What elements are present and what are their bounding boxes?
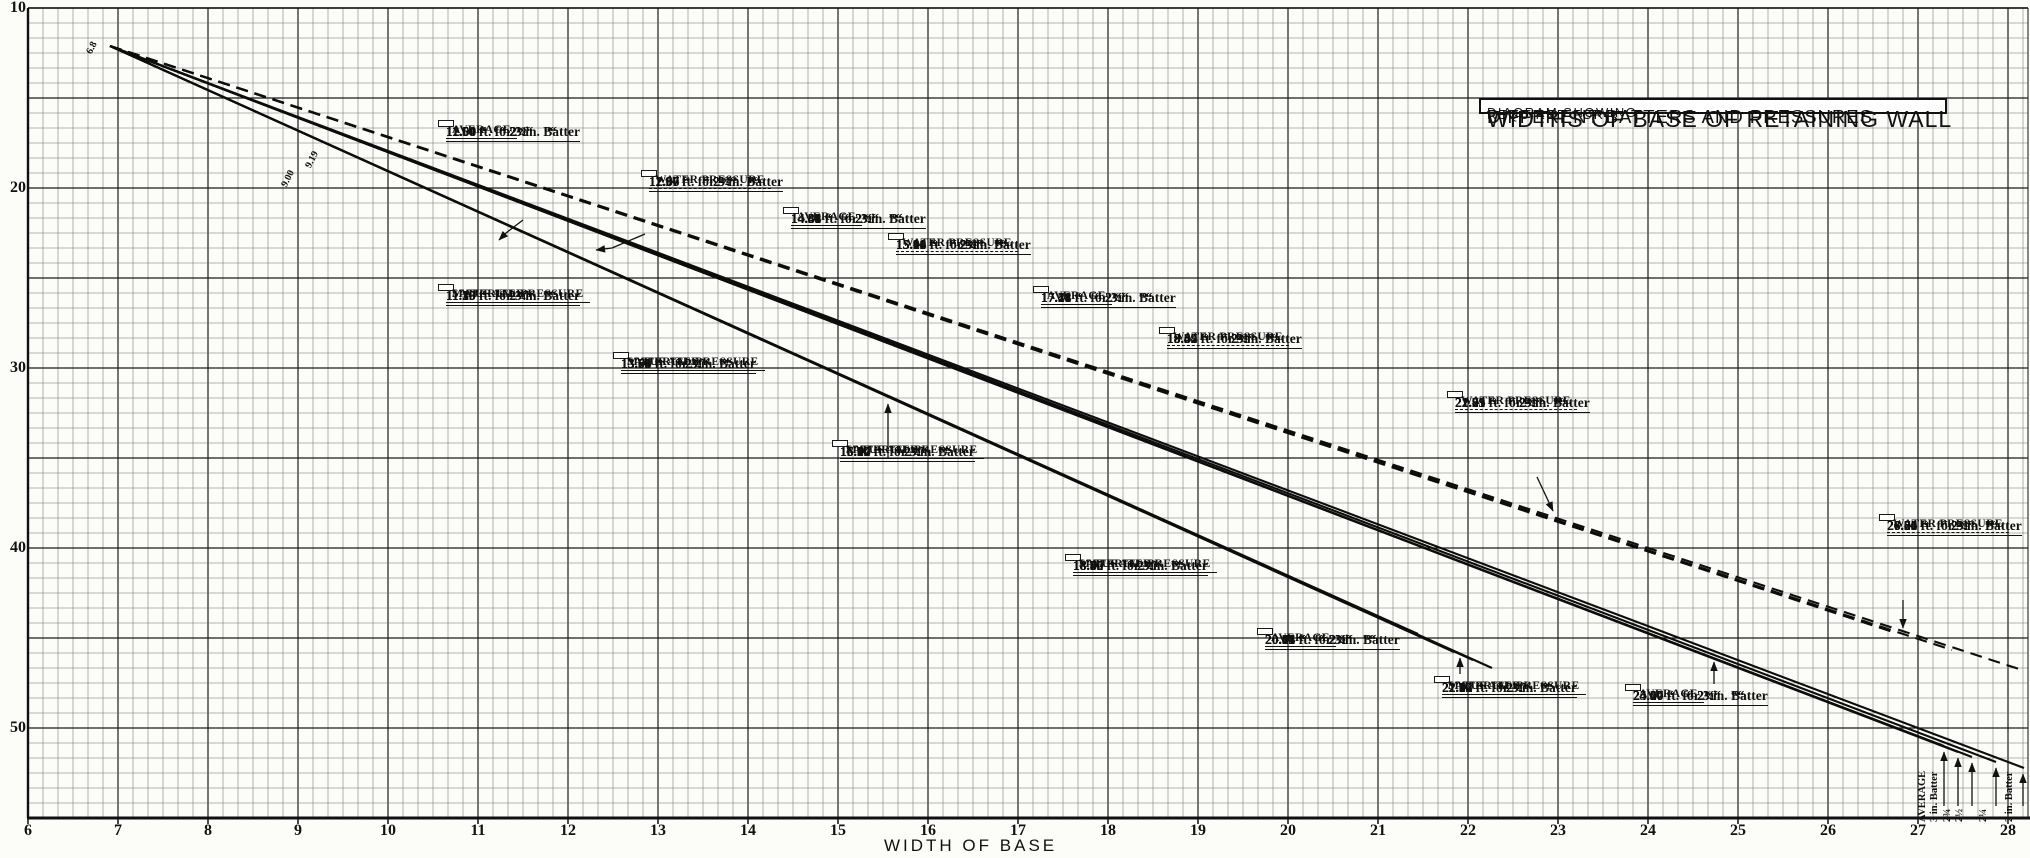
batter-width-row: 14.84 “ “ 2 “ “ <box>791 210 896 227</box>
x-tick-label: 24 <box>1626 822 1670 840</box>
annotation-box-average: AVERAGE14.31 ft. for 3 in. Batter14.35 “… <box>783 207 799 214</box>
y-tick-label: 20 <box>0 179 26 197</box>
curve-end-label: AVERAGE <box>1917 771 1929 822</box>
annotation-box-water-pressure: WATER PRESSURE11.97 ft. for 3 in. Batter… <box>641 170 657 177</box>
annotation-box-saturated: SATURATEDMATERIAL PRESSURE11.15 ft. for … <box>438 284 454 291</box>
curve-end-label: 2½ <box>1954 809 1966 822</box>
x-tick-label: 10 <box>366 822 410 840</box>
x-tick-label: 7 <box>96 822 140 840</box>
batter-width-row: 13.78 “ “ 2 “ “ <box>621 355 726 372</box>
batter-width-row: 22.79 “ “ 2 “ “ <box>1455 394 1560 411</box>
curve-average-2in <box>110 46 2024 768</box>
x-tick-label: 27 <box>1896 822 1940 840</box>
x-tick-label: 18 <box>1086 822 1130 840</box>
annotation-box-average: AVERAGE24.20 ft. for 3 in. Batter24.30 “… <box>1625 684 1641 691</box>
batter-width-row: 25.00 “ “ 2 “ “ <box>1633 687 1738 704</box>
batter-width-row: 11.35 “ “ 2 “ “ <box>446 287 550 304</box>
x-tick-label: 25 <box>1716 822 1760 840</box>
x-tick-label: 19 <box>1176 822 1220 840</box>
batter-width-row: 22.22 “ “ 2 “ “ <box>1442 679 1547 696</box>
annotation-box-water-pressure: WATER PRESSURE26.56 ft. for 3 in. Batter… <box>1879 514 1895 521</box>
curve-end-label: 3 in. Batter <box>1929 772 1941 822</box>
curve-end-label: 2¼ <box>1978 809 1990 822</box>
x-tick-label: 26 <box>1806 822 1850 840</box>
x-tick-label: 13 <box>636 822 680 840</box>
x-tick-label: 8 <box>186 822 230 840</box>
y-tick-label: 30 <box>0 359 26 377</box>
batter-width-row: 17.78 “ “ 2 “ “ <box>1041 289 1146 306</box>
annotation-box-water-pressure: WATER PRESSURE15.08 ft. for 3 in. Batter… <box>888 233 904 240</box>
batter-width-row: 12.00 “ “ 2 “ “ <box>446 123 551 140</box>
x-tick-label: 12 <box>546 822 590 840</box>
annotation-box-saturated: SATURATEDMATERIAL PRESSURE15.94 ft. for … <box>832 440 848 447</box>
x-tick-label: 15 <box>816 822 860 840</box>
annotation-box-saturated: SATURATEDMATERIAL PRESSURE13.54 ft. for … <box>613 352 629 359</box>
batter-width-row: 15.90 “ “ 2 “ “ <box>896 236 1001 253</box>
batter-width-row: 20.75 “ “ 2 “ “ <box>1265 631 1370 648</box>
curve-end-label: 2 in. Batter <box>2004 772 2016 822</box>
annotation-box-saturated: SATURATEDMATERIAL PRESSURE18.35 ft. for … <box>1065 554 1081 561</box>
y-tick-label: 40 <box>0 539 26 557</box>
curve-end-label: 2¾ <box>1942 809 1954 822</box>
x-tick-label: 20 <box>1266 822 1310 840</box>
annotation-box-average: AVERAGE11.56 ft. for 3 in. Batter11.60 “… <box>438 120 454 127</box>
annotation-box-water-pressure: WATER PRESSURE21.73 ft. for 3 in. Batter… <box>1447 391 1463 398</box>
x-tick-label: 22 <box>1446 822 1490 840</box>
diagram-title-box: DIAGRAM SHOWING WIDTHS OF BASE OF RETAIN… <box>1479 98 1947 114</box>
diagram-title-line4: DIFFERENT BATTERS AND PRESSURES <box>1487 106 1873 128</box>
x-tick-label: 9 <box>276 822 320 840</box>
batter-width-row: 12.66 “ “ 2 “ “ <box>649 173 754 190</box>
x-tick-label: 6 <box>6 822 50 840</box>
x-tick-label: 17 <box>996 822 1040 840</box>
x-tick-label: 21 <box>1356 822 1400 840</box>
y-tick-label: 50 <box>0 719 26 737</box>
curve-water-pressure-2in <box>110 46 2022 670</box>
y-tick-label: 10 <box>0 0 26 17</box>
x-tick-label: 23 <box>1536 822 1580 840</box>
x-tick-label: 11 <box>456 822 500 840</box>
curve-saturated-material-pressure-2in <box>110 46 1492 668</box>
annotation-box-water-pressure: WATER PRESSURE18.34 ft. for 3 in. Batter… <box>1159 327 1175 334</box>
y-axis-title: DEPTH BELOW CURB <box>0 275 3 500</box>
batter-width-row: 19.34 “ “ 2 “ “ <box>1167 330 1272 347</box>
retaining-wall-base-width-diagram: { "title_box": { "line1": "DIAGRAM SHOWI… <box>0 0 2030 858</box>
batter-width-row: 18.70 “ “ 2 “ “ <box>1073 557 1178 574</box>
annotation-box-saturated: SATURATEDMATERIAL PRESSURE21.84 ft. for … <box>1434 676 1450 683</box>
batter-width-row: 27.75 “ “ 2 “ “ <box>1887 517 1992 534</box>
x-tick-label: 28 <box>1986 822 2030 840</box>
annotation-box-average: AVERAGE17.14 ft. for 3 in. Batter17.21 “… <box>1033 286 1049 293</box>
leader-arrow <box>1537 477 1553 511</box>
x-tick-label: 14 <box>726 822 770 840</box>
x-tick-label: 16 <box>906 822 950 840</box>
annotation-box-average: AVERAGE20.04 ft. for 3 in. Batter20.11 “… <box>1257 628 1273 635</box>
batter-width-row: 16.22 “ “ 2 “ “ <box>840 443 945 460</box>
